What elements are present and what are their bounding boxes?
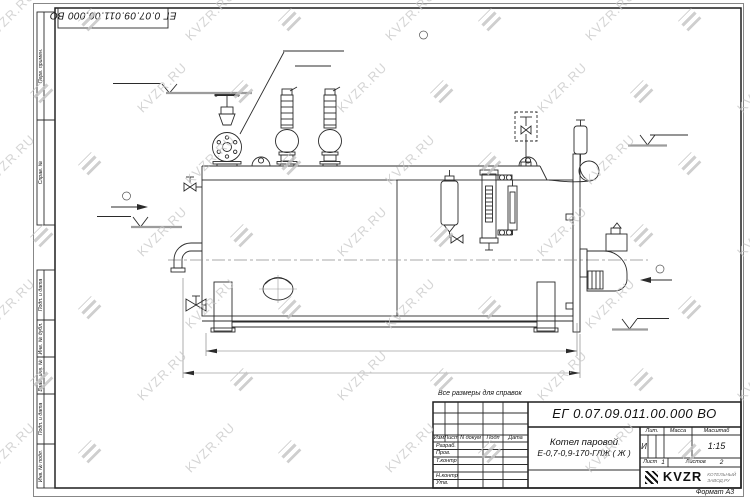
margin-label: Взам. инв. № <box>38 359 44 391</box>
safety-valve-1 <box>276 87 299 166</box>
pressure-gauge-siphon <box>549 120 599 182</box>
boiler-side-view <box>168 87 648 332</box>
annotations: Отвод пара Ду 50 Б А В +2,115 1,630 <box>97 31 688 378</box>
safety-valve-2 <box>319 87 342 166</box>
level-mark-0000: 0,000 <box>612 308 669 330</box>
dimension-3575: 3575 <box>183 278 580 378</box>
callout-line2: Ду 50 <box>297 54 330 66</box>
view-label-b: Б <box>112 192 120 204</box>
level-value: 1,630 <box>658 124 681 134</box>
manhole <box>259 275 297 303</box>
lifting-lug-right <box>519 157 537 166</box>
level-value: 0,000 <box>642 308 665 318</box>
margin-label: Подп. и дата <box>38 279 44 312</box>
gauge-column-2 <box>508 180 517 235</box>
doc-number-inverted: ЕГ 0.07.09.011.00.000 ВО <box>50 10 177 21</box>
view-marker-v: В <box>410 31 428 43</box>
view-marker-a: А <box>640 265 672 283</box>
dim-value: 3575 <box>376 362 397 372</box>
steam-outlet-valve <box>213 93 242 166</box>
margin-label: Подп. и дата <box>38 403 44 436</box>
level-mark-2115: +2,115 <box>113 72 252 93</box>
dimension-3350: 3350 <box>206 323 577 356</box>
level-value: +0,592 <box>100 205 128 215</box>
phantom-valve <box>515 112 537 166</box>
drawing-sheet: Перв. примен. Справ. № Подп. и дата Инв.… <box>0 0 750 500</box>
burner <box>580 223 627 291</box>
water-level-gauge <box>480 170 512 250</box>
view-label-a: А <box>645 265 654 277</box>
margin-label: Справ. № <box>38 160 44 184</box>
margin-label: Инв. № подл. <box>38 450 44 482</box>
level-mark-1630: 1,630 <box>628 124 688 146</box>
view-label-v: В <box>410 31 418 43</box>
sheet-frame-labels: Перв. примен. Справ. № Подп. и дата Инв.… <box>38 10 176 483</box>
drain-valve <box>186 296 206 311</box>
title-block-grid <box>433 402 741 488</box>
lifting-lug-left <box>252 157 270 166</box>
callout-line1: Отвод пара <box>278 38 349 50</box>
level-value: +2,115 <box>123 72 151 82</box>
drawing-canvas: Перв. примен. Справ. № Подп. и дата Инв.… <box>0 0 750 500</box>
boiler-body <box>168 154 648 332</box>
callout-steam-outlet: Отвод пара Ду 50 <box>240 38 349 134</box>
feedwater-elbow <box>171 243 202 272</box>
level-column <box>441 170 463 243</box>
left-top-valve <box>184 177 202 191</box>
sheet-frame <box>34 4 744 497</box>
dim-value: 3350 <box>381 340 401 350</box>
margin-label: Перв. примен. <box>38 49 44 83</box>
margin-label: Инв. № дубл. <box>38 323 44 355</box>
view-marker-b: Б <box>111 192 148 210</box>
